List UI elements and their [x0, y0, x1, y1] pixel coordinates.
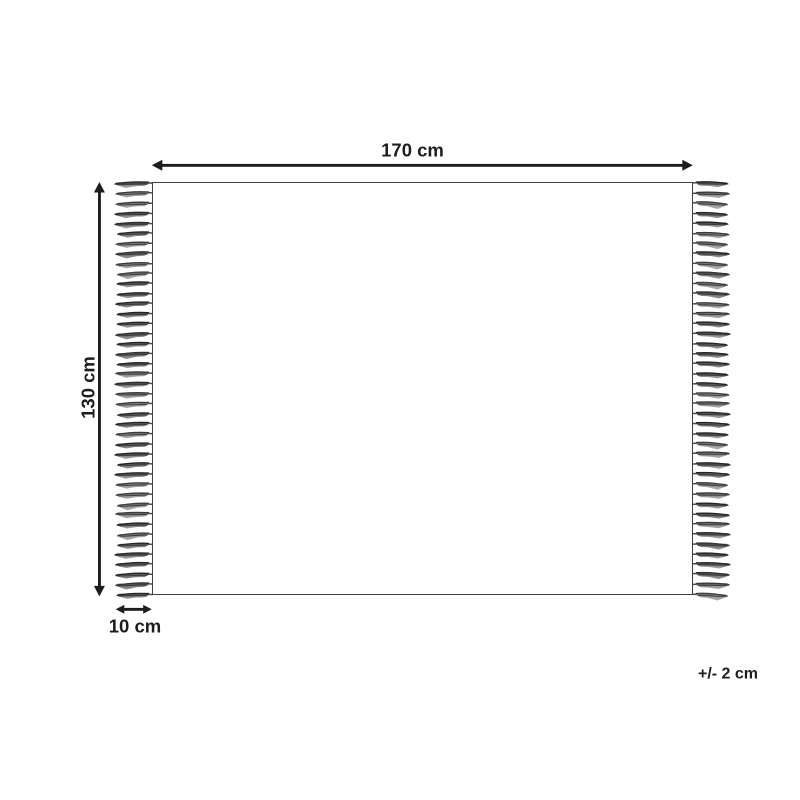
svg-text:10 cm: 10 cm [109, 616, 161, 637]
svg-text:170 cm: 170 cm [381, 140, 444, 161]
svg-text:+/- 2 cm: +/- 2 cm [698, 665, 758, 682]
svg-text:130 cm: 130 cm [78, 356, 99, 419]
